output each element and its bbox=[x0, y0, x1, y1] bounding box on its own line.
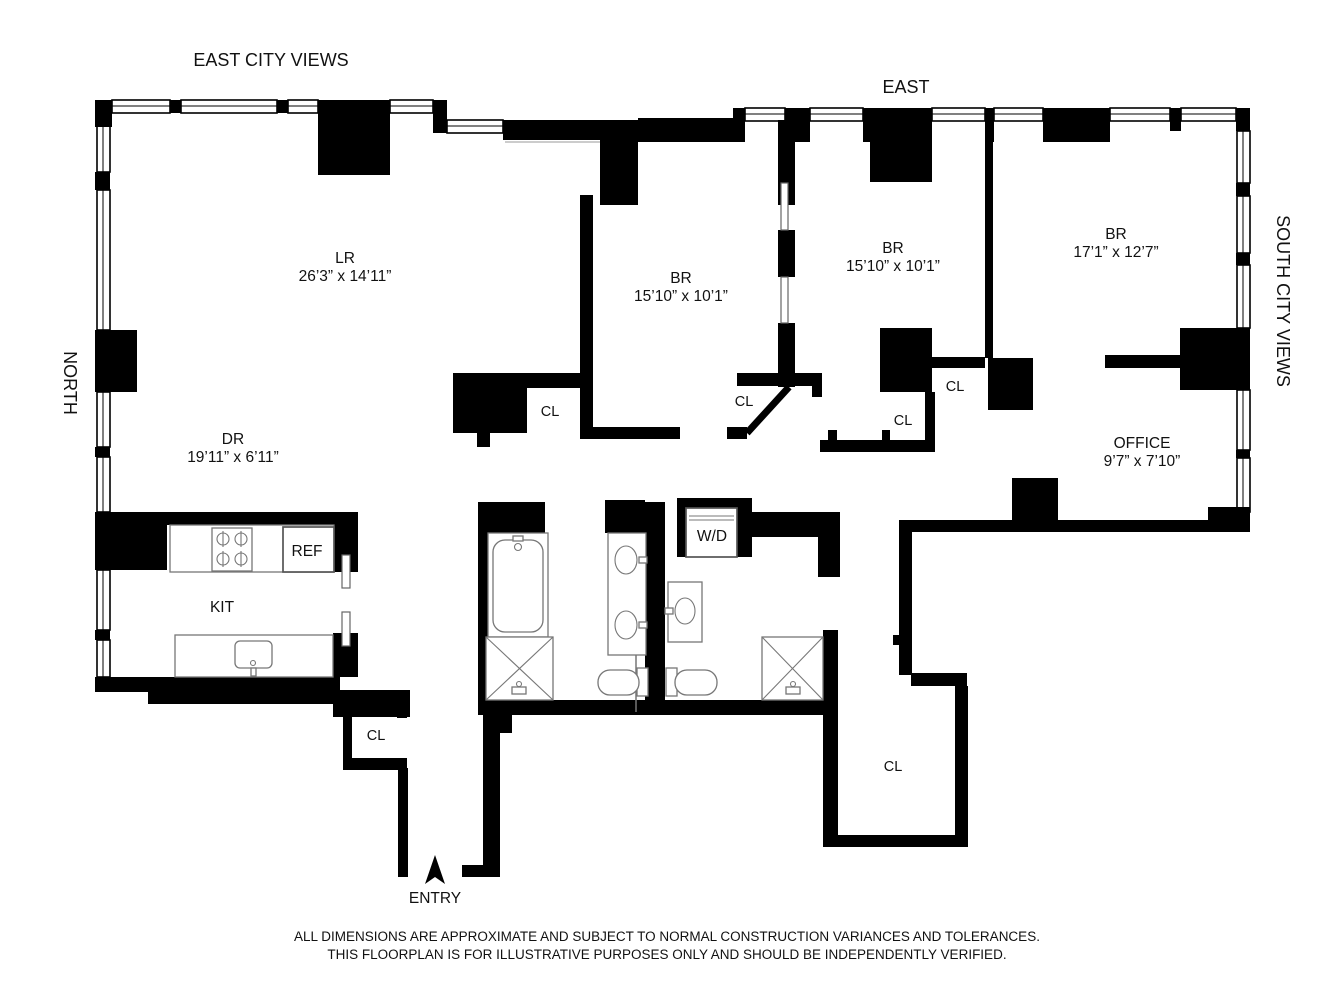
room-label-lr: LR bbox=[335, 250, 355, 267]
door-leaves bbox=[342, 142, 788, 712]
room-label-office: OFFICE bbox=[1114, 435, 1171, 452]
disclaimer-line2: THIS FLOORPLAN IS FOR ILLUSTRATIVE PURPO… bbox=[327, 947, 1006, 962]
shower-master-icon bbox=[486, 637, 553, 700]
pocket-door-br2 bbox=[781, 277, 788, 323]
floorplan-page: EAST CITY VIEWS EAST NORTH SOUTH CITY VI… bbox=[0, 0, 1334, 1000]
bathtub-icon bbox=[488, 533, 548, 637]
room-dims-br-center: 15’10” x 10’1” bbox=[634, 288, 728, 305]
room-label-br-east: BR bbox=[882, 240, 904, 257]
fixture-label-ref: REF bbox=[292, 543, 323, 560]
closet-label-br1: CL bbox=[541, 404, 560, 420]
toilet-master-icon bbox=[598, 668, 648, 696]
orientation-right: SOUTH CITY VIEWS bbox=[1273, 215, 1293, 387]
fixture-label-wd: W/D bbox=[697, 528, 727, 545]
closet-label-entry: CL bbox=[367, 728, 386, 744]
entry-arrow-icon bbox=[425, 855, 445, 884]
shower-second-icon bbox=[762, 637, 823, 700]
single-vanity-icon bbox=[665, 582, 702, 642]
closet-door-diagonal bbox=[747, 387, 789, 433]
orientation-top-right: EAST bbox=[882, 77, 929, 97]
closet-label-walkin: CL bbox=[884, 759, 903, 775]
room-dims-br-east: 15’10” x 10’1” bbox=[846, 258, 940, 275]
room-label-kit: KIT bbox=[210, 599, 235, 616]
closet-label-br3: CL bbox=[946, 379, 965, 395]
stove-icon bbox=[212, 528, 252, 571]
pocket-door-kitchen-lower bbox=[342, 612, 350, 646]
pocket-door-kitchen-upper bbox=[342, 555, 350, 588]
closet-label-br2: CL bbox=[894, 413, 913, 429]
orientation-left: NORTH bbox=[60, 351, 80, 415]
pocket-door-br1 bbox=[781, 183, 788, 230]
entry-label: ENTRY bbox=[409, 890, 461, 907]
room-dims-br-south: 17’1” x 12’7” bbox=[1073, 244, 1158, 261]
room-dims-dr: 19’11” x 6’11” bbox=[187, 449, 279, 466]
double-vanity-icon bbox=[608, 533, 647, 655]
closet-label-hall: CL bbox=[735, 394, 754, 410]
floorplan-drawing: EAST CITY VIEWS EAST NORTH SOUTH CITY VI… bbox=[0, 0, 1334, 1000]
toilet-second-icon bbox=[666, 668, 717, 696]
orientation-top-left: EAST CITY VIEWS bbox=[193, 50, 348, 70]
room-label-br-center: BR bbox=[670, 270, 692, 287]
walls bbox=[95, 100, 1250, 877]
room-label-br-south: BR bbox=[1105, 226, 1127, 243]
labels: EAST CITY VIEWS EAST NORTH SOUTH CITY VI… bbox=[60, 50, 1293, 962]
room-dims-office: 9’7” x 7’10” bbox=[1104, 453, 1181, 470]
room-label-dr: DR bbox=[222, 431, 244, 448]
disclaimer-line1: ALL DIMENSIONS ARE APPROXIMATE AND SUBJE… bbox=[294, 929, 1040, 944]
room-dims-lr: 26’3” x 14’11” bbox=[299, 268, 392, 285]
